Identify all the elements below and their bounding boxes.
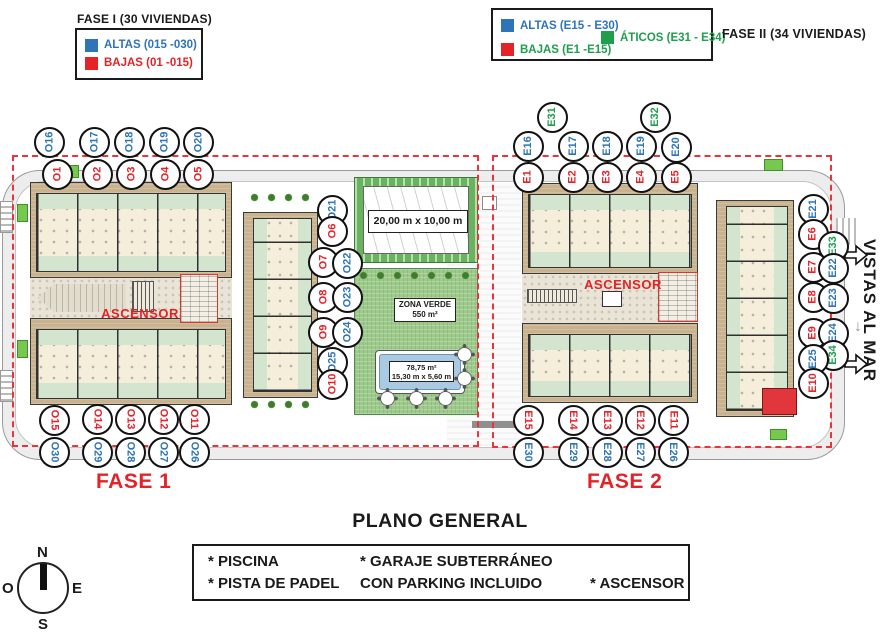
legend-item-altas-f1: ALTAS (015 -030) <box>85 39 193 52</box>
unit-circle-E18: E18 <box>592 131 623 162</box>
unit-circle-E28: E28 <box>592 437 623 468</box>
fase2-boundary <box>492 155 832 448</box>
unit-circle-E26: E26 <box>658 437 689 468</box>
unit-circle-O2: O2 <box>82 159 113 190</box>
legend-item-bajas-f2: BAJAS (E1 -E15) <box>501 43 611 56</box>
unit-circle-E1: E1 <box>513 162 544 193</box>
unit-circle-O22: O22 <box>332 248 363 279</box>
unit-circle-O26: O26 <box>179 437 210 468</box>
legend-aticos-f2-label: ÁTICOS (E31 - E34) <box>620 32 725 44</box>
unit-circle-E31: E31 <box>537 102 568 133</box>
unit-circle-O23: O23 <box>332 282 363 313</box>
site-plan-canvas: FASE I (30 VIVIENDAS) ALTAS (015 -030) B… <box>0 0 880 640</box>
unit-circle-E15: E15 <box>513 405 544 436</box>
unit-circle-O30: O30 <box>39 437 70 468</box>
unit-circle-O15: O15 <box>39 405 70 436</box>
unit-circle-O24: O24 <box>332 317 363 348</box>
fase2-ascensor-label: ASCENSOR <box>584 277 662 292</box>
facility-padel: * PISTA DE PADEL <box>208 575 360 592</box>
legend-item-bajas-f1: BAJAS (01 -015) <box>85 57 193 70</box>
facilities-box: * PISCINA * GARAJE SUBTERRÁNEO * PISTA D… <box>192 544 690 601</box>
unit-circle-E20: E20 <box>661 132 692 163</box>
fase1-label: FASE 1 <box>96 470 171 494</box>
unit-circle-E30: E30 <box>513 437 544 468</box>
compass-west: O <box>2 580 14 597</box>
facility-parking: CON PARKING INCLUIDO <box>360 575 590 592</box>
unit-circle-E22: E22 <box>818 253 849 284</box>
red-swatch-icon <box>85 57 98 70</box>
green-swatch-icon <box>601 31 614 44</box>
unit-circle-O28: O28 <box>115 437 146 468</box>
unit-circle-O5: O5 <box>183 159 214 190</box>
unit-circle-O13: O13 <box>115 404 146 435</box>
unit-circle-E3: E3 <box>592 162 623 193</box>
unit-circle-E2: E2 <box>558 162 589 193</box>
facility-piscina: * PISCINA <box>208 553 360 570</box>
compass-north: N <box>37 544 48 561</box>
unit-circle-E32: E32 <box>640 102 671 133</box>
unit-circle-O14: O14 <box>82 404 113 435</box>
unit-circle-E10: E10 <box>798 368 829 399</box>
unit-circle-E11: E11 <box>658 405 689 436</box>
legend-item-aticos-f2: ÁTICOS (E31 - E34) <box>601 31 725 44</box>
unit-circle-O11: O11 <box>179 404 210 435</box>
unit-circle-E29: E29 <box>558 437 589 468</box>
unit-circle-O12: O12 <box>148 404 179 435</box>
fase1-ascensor-label: ASCENSOR <box>100 306 180 321</box>
facility-ascensor: * ASCENSOR <box>590 575 684 592</box>
compass-needle <box>40 564 47 590</box>
fase2-label: FASE 2 <box>587 470 662 494</box>
unit-circle-O3: O3 <box>116 159 147 190</box>
unit-circle-O19: O19 <box>149 127 180 158</box>
legend-altas-f2-label: ALTAS (E15 - E30) <box>520 20 619 32</box>
unit-circle-O20: O20 <box>183 127 214 158</box>
compass-east: E <box>72 580 82 597</box>
unit-circle-E27: E27 <box>625 437 656 468</box>
unit-circle-O10: O10 <box>317 369 348 400</box>
unit-circle-E14: E14 <box>558 405 589 436</box>
legend-fase2-box: ALTAS (E15 - E30) BAJAS (E1 -E15) ÁTICOS… <box>491 8 713 61</box>
compass-south: S <box>38 616 48 633</box>
legend-bajas-f2-label: BAJAS (E1 -E15) <box>520 44 611 56</box>
unit-circle-O18: O18 <box>114 127 145 158</box>
unit-circle-E5: E5 <box>661 162 692 193</box>
legend-bajas-f1-label: BAJAS (01 -015) <box>104 57 193 69</box>
unit-circle-E4: E4 <box>626 162 657 193</box>
unit-circle-O4: O4 <box>150 159 181 190</box>
unit-circle-E17: E17 <box>558 131 589 162</box>
unit-circle-O16: O16 <box>34 127 65 158</box>
fase1-boundary <box>12 155 479 447</box>
unit-circle-E16: E16 <box>513 131 544 162</box>
unit-circle-E12: E12 <box>625 405 656 436</box>
facility-garaje: * GARAJE SUBTERRÁNEO <box>360 553 590 570</box>
blue-swatch-icon <box>501 19 514 32</box>
unit-circle-O1: O1 <box>42 159 73 190</box>
legend-fase2-title: FASE II (34 VIVIENDAS) <box>722 27 866 41</box>
blue-swatch-icon <box>85 39 98 52</box>
red-swatch-icon <box>501 43 514 56</box>
unit-circle-O29: O29 <box>82 437 113 468</box>
unit-circle-E13: E13 <box>592 405 623 436</box>
legend-fase1-title: FASE I (30 VIVIENDAS) <box>77 12 212 26</box>
page-title: PLANO GENERAL <box>290 510 590 533</box>
unit-circle-E23: E23 <box>818 283 849 314</box>
unit-circle-E19: E19 <box>626 131 657 162</box>
legend-altas-f1-label: ALTAS (015 -030) <box>104 39 197 51</box>
unit-circle-O6: O6 <box>317 216 348 247</box>
legend-fase1-box: ALTAS (015 -030) BAJAS (01 -015) <box>75 28 203 80</box>
unit-circle-O17: O17 <box>79 127 110 158</box>
unit-circle-O27: O27 <box>148 437 179 468</box>
